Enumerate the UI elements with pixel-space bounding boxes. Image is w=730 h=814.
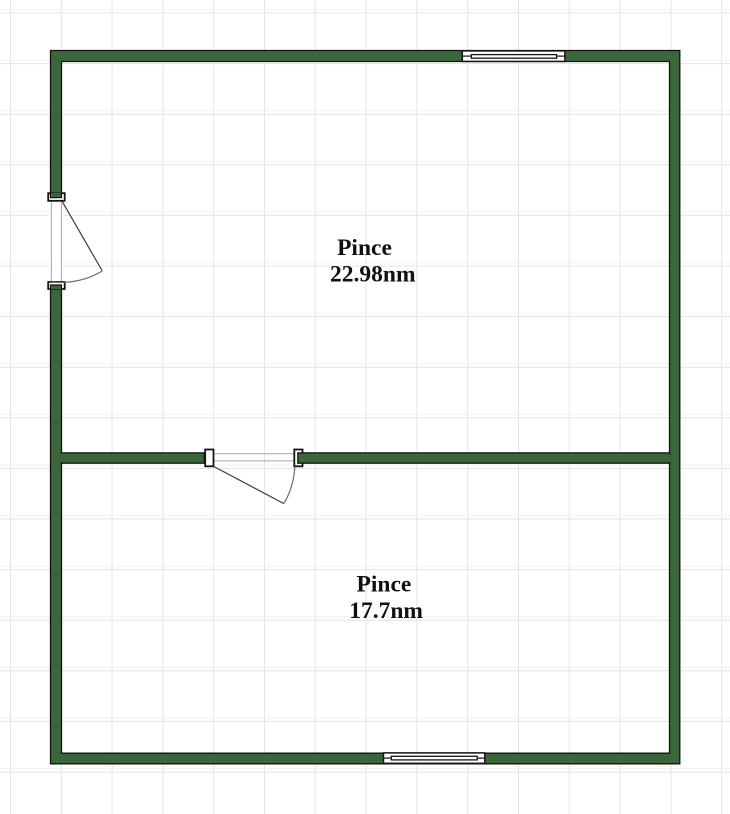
svg-text:17.7nm: 17.7nm <box>349 598 423 624</box>
svg-text:Pince: Pince <box>337 235 392 261</box>
svg-text:22.98nm: 22.98nm <box>330 261 416 287</box>
svg-text:Pince: Pince <box>356 571 411 597</box>
